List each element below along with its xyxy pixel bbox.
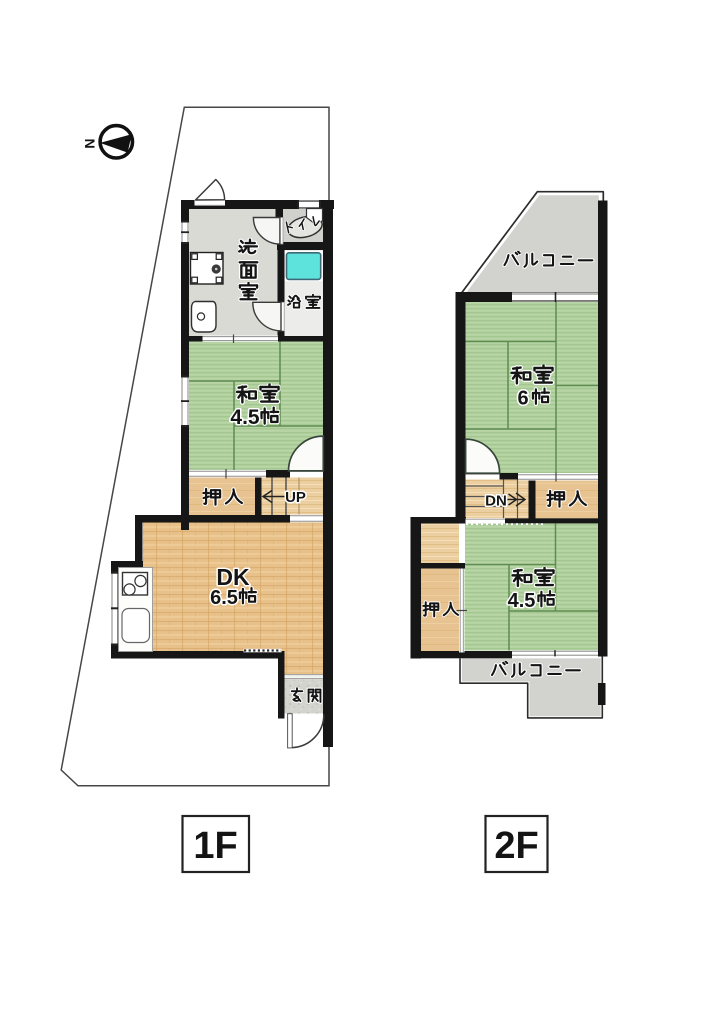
svg-text:DN: DN	[485, 493, 507, 510]
svg-text:6: 6	[517, 388, 528, 410]
svg-text:1F: 1F	[193, 825, 237, 867]
svg-text:4.5: 4.5	[508, 590, 536, 612]
svg-text:4.5: 4.5	[230, 406, 260, 429]
svg-text:N: N	[82, 138, 98, 148]
svg-text:2F: 2F	[494, 825, 538, 867]
svg-text:UP: UP	[285, 489, 306, 506]
svg-text:6.5: 6.5	[210, 587, 238, 609]
